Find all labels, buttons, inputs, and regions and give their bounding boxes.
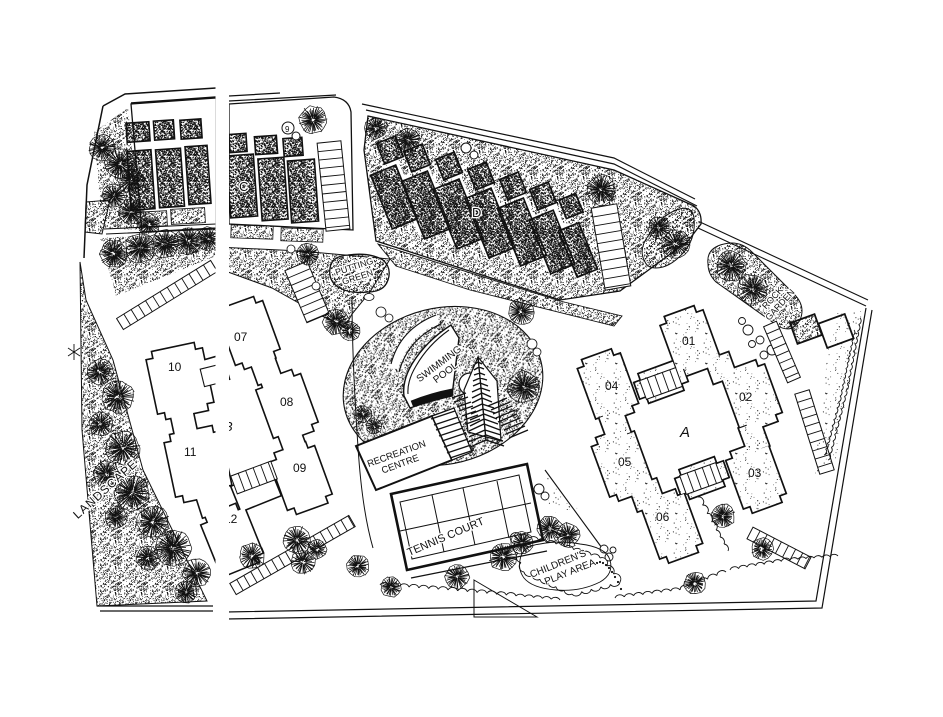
svg-text:9: 9: [285, 125, 290, 134]
svg-text:03: 03: [748, 466, 762, 480]
svg-text:A: A: [679, 424, 690, 441]
svg-text:C: C: [239, 179, 248, 194]
svg-text:04: 04: [605, 379, 619, 393]
svg-text:09: 09: [293, 461, 307, 475]
svg-text:11: 11: [184, 445, 197, 459]
svg-text:05: 05: [618, 455, 632, 469]
svg-text:D: D: [472, 205, 481, 220]
svg-text:07: 07: [234, 330, 248, 344]
svg-text:08: 08: [280, 395, 294, 409]
svg-text:10: 10: [168, 360, 182, 374]
svg-text:02: 02: [739, 390, 753, 404]
svg-text:01: 01: [682, 334, 696, 348]
svg-text:06: 06: [656, 510, 670, 524]
